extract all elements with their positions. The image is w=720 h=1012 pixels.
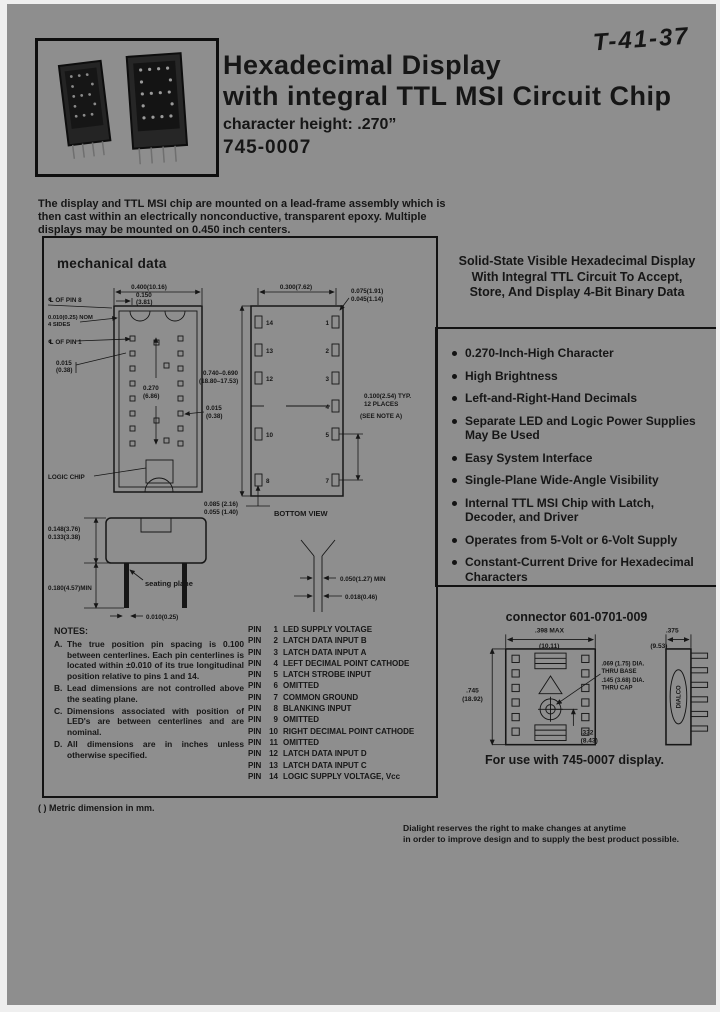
centerline-pin1-label: ℄ OF PIN 1 <box>48 339 82 346</box>
pin-label-10: 10 <box>266 432 274 439</box>
notes-heading: NOTES: <box>54 626 244 637</box>
feature-item: Single-Plane Wide-Angle Visibility <box>452 473 706 488</box>
pin-function: LATCH STROBE INPUT <box>283 669 371 680</box>
pin-function: LOGIC SUPPLY VOLTAGE, Vcc <box>283 771 400 782</box>
title-line-1: Hexadecimal Display <box>223 50 501 80</box>
connector-caption: For use with 745-0007 display. <box>427 753 720 767</box>
dim-pad-width-a: 0.075(1.91) <box>351 288 383 295</box>
pin-function: LATCH DATA INPUT B <box>283 635 367 646</box>
dim-connector-depth: .375 <box>666 627 679 634</box>
bullet-icon <box>452 419 457 424</box>
pin-label-2: 2 <box>325 348 329 355</box>
pin-row: PIN10RIGHT DECIMAL POINT CATHODE <box>248 726 434 737</box>
connector-title: connector 601-0701-009 <box>435 610 718 624</box>
bullet-icon <box>452 396 457 401</box>
feature-item: Constant-Current Drive for Hexadecimal C… <box>452 555 706 584</box>
product-photo-left <box>59 61 112 159</box>
feature-item: Internal TTL MSI Chip with Latch, Decode… <box>452 496 706 525</box>
pin-label-13: 13 <box>266 348 274 355</box>
dim-pad-a: 0.085 (2.16) <box>204 501 238 508</box>
bullet-icon <box>452 456 457 461</box>
dim-connector-width-mm: (10.11) <box>539 643 559 650</box>
pin-row: PIN4LEFT DECIMAL POINT CATHODE <box>248 658 434 669</box>
pin-label-3: 3 <box>325 376 329 383</box>
bullet-icon <box>452 478 457 483</box>
dim-connector-height: .745 <box>466 688 479 695</box>
pin-function: LED SUPPLY VOLTAGE <box>283 624 372 635</box>
disclaimer: Dialight reserves the right to make chan… <box>403 823 720 845</box>
pin-label-14: 14 <box>266 320 274 327</box>
pin-function: OMITTED <box>283 680 319 691</box>
bullet-icon <box>452 538 457 543</box>
dim-led-size-mm: (0.38) <box>206 413 222 420</box>
mechanical-data-box: mechanical data <box>42 236 438 798</box>
pin-row: PIN8BLANKING INPUT <box>248 703 434 714</box>
dim-row-span: 0.300(7.62) <box>280 284 312 291</box>
feature-item: High Brightness <box>452 369 706 384</box>
page-title: Hexadecimal Display with integral TTL MS… <box>223 50 703 112</box>
pin-function: RIGHT DECIMAL POINT CATHODE <box>283 726 414 737</box>
dim-front-width: 0.400(10.16) <box>131 284 167 291</box>
dialco-logo: DIALCO <box>677 685 683 708</box>
feature-item: Easy System Interface <box>452 451 706 466</box>
dim-front-offset-mm: (3.81) <box>136 299 152 306</box>
dim-char-height: 0.270 <box>143 385 159 392</box>
dim-connector-height-mm: (18.92) <box>462 696 483 703</box>
dim-pitch-1: 0.100(2.54) TYP. <box>364 393 411 400</box>
dim-pad-width-b: 0.045(1.14) <box>351 296 383 303</box>
connector-drawing: .398 MAX (10.11) .375 (9.53) .745 (18.92… <box>435 626 718 752</box>
dim-pad-b: 0.055 (1.40) <box>204 509 238 516</box>
pin-row: PIN14LOGIC SUPPLY VOLTAGE, Vcc <box>248 771 434 782</box>
headline-line-2: With Integral TTL Circuit To Accept, <box>472 270 683 284</box>
dim-hole-cap: .145 (3.68) DIA. <box>601 678 644 684</box>
dim-front-offset: 0.150 <box>136 292 152 299</box>
dim-hole-cap-2: THRU CAP <box>601 686 632 692</box>
dim-pitch-note: (SEE NOTE A) <box>360 413 402 420</box>
feature-item: Separate LED and Logic Power Supplies Ma… <box>452 414 706 443</box>
disclaimer-line-1: Dialight reserves the right to make chan… <box>403 823 626 833</box>
bottom-view-caption: BOTTOM VIEW <box>274 509 329 518</box>
datasheet-page: T-41-37 <box>0 0 720 1012</box>
note-a: A.The true position pin spacing is 0.100… <box>54 639 244 682</box>
dim-hole-base-2: THRU BASE <box>601 669 636 675</box>
character-height: character height: .270” <box>223 116 703 134</box>
mechanical-data-heading: mechanical data <box>57 256 167 271</box>
headline-line-1: Solid-State Visible Hexadecimal Display <box>459 254 696 268</box>
dim-body-height-mm: (18.80–17.53) <box>199 378 238 385</box>
title-line-2: with integral TTL MSI Circuit Chip <box>223 81 672 111</box>
title-block: Hexadecimal Display with integral TTL MS… <box>223 50 703 159</box>
pin-function-list: PIN1LED SUPPLY VOLTAGE PIN2LATCH DATA IN… <box>248 624 434 782</box>
dim-pitch-2: 12 PLACES <box>364 401 398 408</box>
lead-detail <box>294 540 342 612</box>
pin-row: PIN11OMITTED <box>248 737 434 748</box>
pin-row: PIN3LATCH DATA INPUT A <box>248 647 434 658</box>
dim-lead-b: 0.018(0.46) <box>345 594 377 601</box>
dim-hole-base: .069 (1.75) DIA. <box>601 662 644 668</box>
dim-lead-a: 0.050(1.27) MIN <box>340 576 386 583</box>
product-photo <box>38 41 210 168</box>
pin-function: OMITTED <box>283 714 319 725</box>
centerline-pin8-label: ℄ OF PIN 8 <box>48 297 82 304</box>
dim-connector-width: .398 MAX <box>535 627 565 634</box>
pin-label-4: 4 <box>325 404 329 411</box>
dim-body-height: 0.740–0.690 <box>203 370 239 377</box>
feature-item: Left-and-Right-Hand Decimals <box>452 391 706 406</box>
pin-row: PIN6OMITTED <box>248 680 434 691</box>
mechanical-drawing: 0.400(10.16) 0.150 (3.81) ℄ OF PIN 8 0.0… <box>46 278 436 624</box>
product-photo-box <box>35 38 219 177</box>
dim-lead-min: 0.180(4.57)MIN <box>48 585 92 592</box>
pin-function: LATCH DATA INPUT D <box>283 748 367 759</box>
connector-front-view <box>492 634 600 744</box>
pin-row: PIN1LED SUPPLY VOLTAGE <box>248 624 434 635</box>
pin-label-8: 8 <box>266 478 270 485</box>
dim-cap-a: 0.148(3.76) <box>48 526 80 533</box>
product-photo-right <box>127 53 188 165</box>
dim-cap-b: 0.133(3.38) <box>48 534 80 541</box>
bullet-icon <box>452 501 457 506</box>
dim-connector-depth-mm: (9.53) <box>650 643 667 650</box>
feature-item: 0.270-Inch-High Character <box>452 346 706 361</box>
pin-function: COMMON GROUND <box>283 692 358 703</box>
dim-center-mm: (8.43) <box>581 738 598 745</box>
nom-4-sides-label-2: 4 SIDES <box>48 322 70 328</box>
dim-led-size: 0.015 <box>206 405 222 412</box>
pin-function: BLANKING INPUT <box>283 703 351 714</box>
dim-led-row-mm: (0.38) <box>56 367 72 374</box>
dim-led-row: 0.015 <box>56 360 72 367</box>
intro-paragraph: The display and TTL MSI chip are mounted… <box>38 198 450 237</box>
pin-label-5: 5 <box>325 432 329 439</box>
disclaimer-line-2: in order to improve design and to supply… <box>403 834 679 844</box>
seating-plane-label: seating plane <box>145 579 193 588</box>
dim-char-height-mm: (6.86) <box>143 393 159 400</box>
notes-section: NOTES: A.The true position pin spacing i… <box>54 626 244 762</box>
note-b: B.Lead dimensions are not controlled abo… <box>54 683 244 705</box>
pin-row: PIN5LATCH STROBE INPUT <box>248 669 434 680</box>
pin-function: LATCH DATA INPUT C <box>283 760 367 771</box>
pin-label-12: 12 <box>266 376 274 383</box>
side-view <box>84 518 206 616</box>
metric-note: ( ) Metric dimension in mm. <box>38 803 155 813</box>
bullet-icon <box>452 560 457 565</box>
dim-lead-width: 0.010(0.25) <box>146 614 178 621</box>
feature-item: Operates from 5-Volt or 6-Volt Supply <box>452 533 706 548</box>
pin-label-1: 1 <box>325 320 329 327</box>
note-c: C.Dimensions associated with position of… <box>54 706 244 738</box>
note-d: D.All dimensions are in inches unless ot… <box>54 739 244 761</box>
pin-row: PIN12LATCH DATA INPUT D <box>248 748 434 759</box>
headline: Solid-State Visible Hexadecimal Display … <box>433 254 720 301</box>
pin-label-7: 7 <box>325 478 329 485</box>
headline-line-3: Store, And Display 4-Bit Binary Data <box>470 285 685 299</box>
nom-4-sides-label-1: 0.010(0.25) NOM <box>48 315 93 321</box>
features-box: 0.270-Inch-High Character High Brightnes… <box>435 327 718 587</box>
pin-row: PIN9OMITTED <box>248 714 434 725</box>
connector-side-view <box>666 634 708 744</box>
part-number: 745-0007 <box>223 137 703 159</box>
pin-row: PIN7COMMON GROUND <box>248 692 434 703</box>
bullet-icon <box>452 351 457 356</box>
pin-row: PIN2LATCH DATA INPUT B <box>248 635 434 646</box>
bottom-view <box>242 288 363 506</box>
pin-function: OMITTED <box>283 737 319 748</box>
bullet-icon <box>452 374 457 379</box>
dim-center: .332 <box>581 729 594 736</box>
pin-row: PIN13LATCH DATA INPUT C <box>248 760 434 771</box>
pin-function: LATCH DATA INPUT A <box>283 647 366 658</box>
pin-function: LEFT DECIMAL POINT CATHODE <box>283 658 409 669</box>
logic-chip-label: LOGIC CHIP <box>48 474 85 481</box>
